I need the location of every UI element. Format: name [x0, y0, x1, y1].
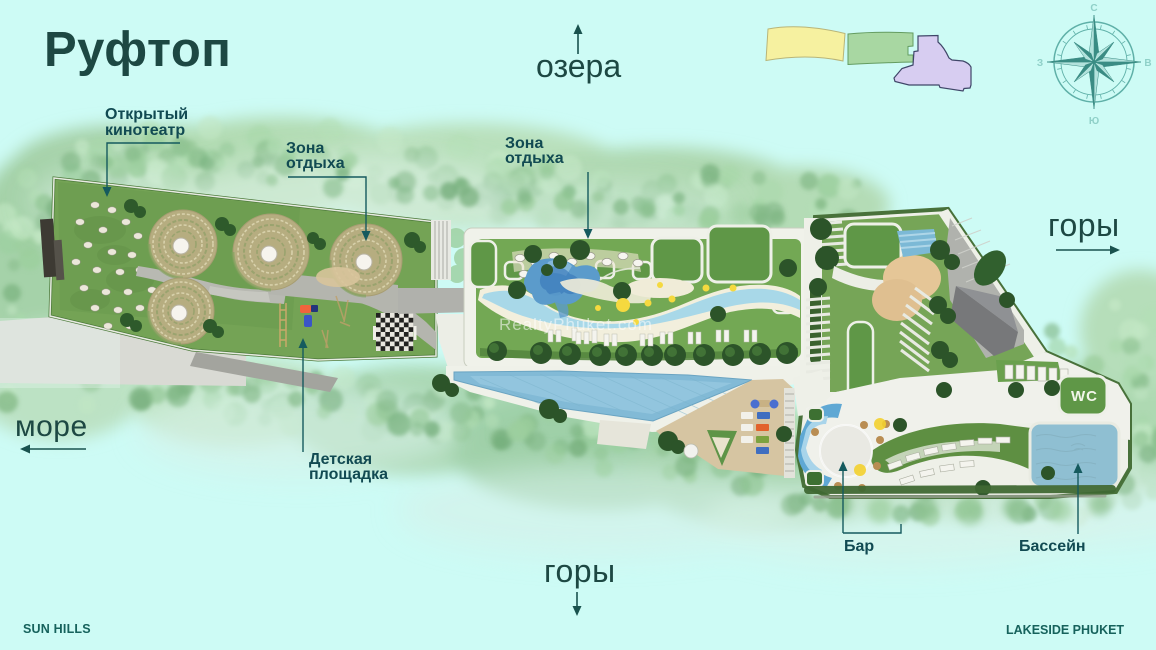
svg-text:RealtyPhuket.com: RealtyPhuket.com	[499, 315, 653, 334]
svg-text:SUN HILLS: SUN HILLS	[23, 622, 91, 636]
svg-text:Бар: Бар	[844, 538, 874, 555]
svg-text:С: С	[1090, 3, 1097, 14]
svg-text:Руфтоп: Руфтоп	[44, 23, 231, 77]
svg-text:LAKESIDE PHUKET: LAKESIDE PHUKET	[1006, 623, 1124, 637]
svg-text:WC: WC	[1071, 388, 1098, 405]
svg-text:отдыха: отдыха	[505, 150, 564, 167]
svg-text:Ю: Ю	[1089, 116, 1099, 127]
svg-text:Бассейн: Бассейн	[1019, 538, 1086, 555]
svg-text:площадка: площадка	[309, 466, 388, 483]
svg-text:море: море	[15, 410, 88, 443]
svg-text:З: З	[1037, 58, 1043, 69]
svg-text:отдыха: отдыха	[286, 155, 345, 172]
svg-text:В: В	[1144, 58, 1151, 69]
svg-text:горы: горы	[544, 553, 616, 589]
svg-text:горы: горы	[1048, 207, 1120, 243]
svg-text:кинотеатр: кинотеатр	[105, 122, 185, 139]
svg-text:Открытый: Открытый	[105, 106, 188, 123]
